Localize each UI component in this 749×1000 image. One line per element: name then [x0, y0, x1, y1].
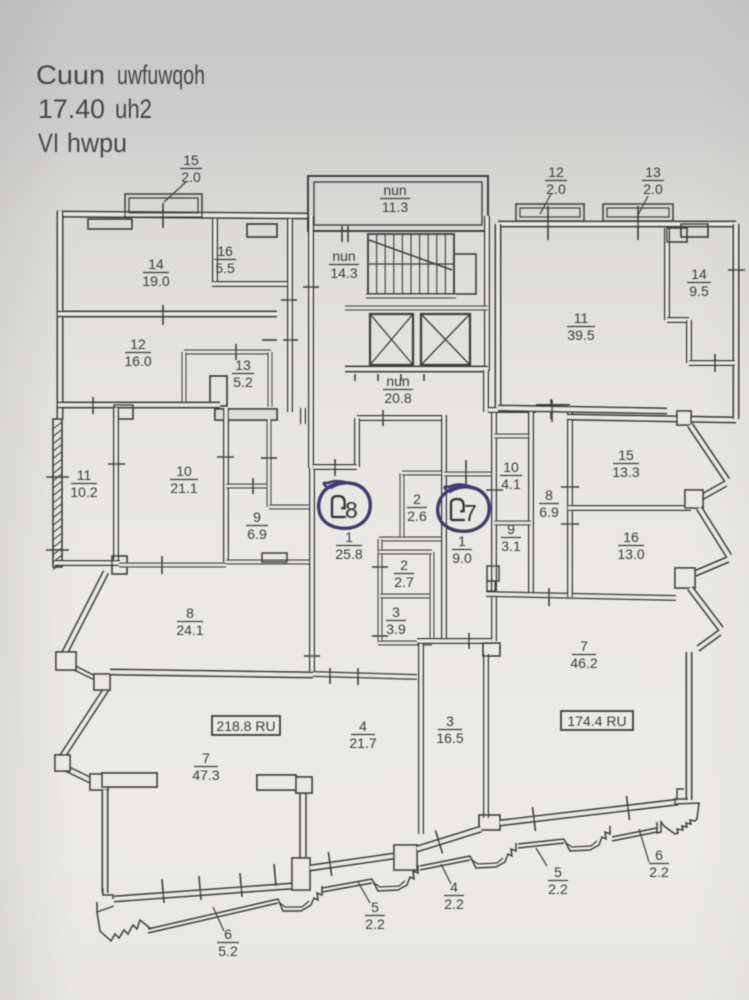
svg-text:14: 14 — [691, 266, 707, 282]
svg-text:16: 16 — [623, 529, 639, 545]
svg-text:13: 13 — [235, 357, 251, 373]
svg-text:2.6: 2.6 — [407, 508, 427, 524]
svg-text:25.8: 25.8 — [335, 546, 362, 562]
svg-text:16.0: 16.0 — [124, 353, 151, 369]
svg-text:2: 2 — [400, 557, 408, 573]
svg-text:6: 6 — [224, 926, 232, 942]
svg-text:4: 4 — [450, 879, 458, 895]
svg-text:Cuun: Cuun — [36, 60, 105, 90]
svg-text:10: 10 — [503, 459, 519, 475]
svg-text:13.3: 13.3 — [612, 464, 639, 480]
svg-text:nun: nun — [386, 373, 409, 389]
svg-text:9: 9 — [253, 509, 261, 525]
svg-text:11: 11 — [77, 467, 92, 483]
svg-text:14: 14 — [148, 256, 164, 272]
svg-text:9: 9 — [507, 521, 515, 537]
svg-text:218.8 RU: 218.8 RU — [216, 718, 275, 734]
svg-text:5.5: 5.5 — [215, 260, 235, 276]
svg-text:8: 8 — [345, 497, 358, 523]
svg-text:5.2: 5.2 — [218, 943, 238, 959]
svg-text:6.9: 6.9 — [539, 504, 559, 520]
svg-text:17.40: 17.40 — [38, 94, 105, 124]
svg-text:2.7: 2.7 — [394, 574, 414, 590]
svg-text:3.9: 3.9 — [386, 621, 406, 637]
svg-text:19.0: 19.0 — [142, 273, 169, 289]
svg-text:21.7: 21.7 — [349, 735, 376, 751]
svg-text:hwpu: hwpu — [67, 128, 127, 158]
svg-text:VI: VI — [38, 128, 59, 158]
svg-text:3.1: 3.1 — [501, 538, 521, 554]
svg-text:uh2: uh2 — [115, 94, 152, 124]
svg-text:6.9: 6.9 — [247, 526, 267, 542]
svg-text:nun: nun — [332, 248, 355, 264]
svg-text:11.3: 11.3 — [382, 199, 408, 215]
svg-text:10: 10 — [176, 463, 192, 479]
svg-text:9.5: 9.5 — [689, 283, 709, 299]
svg-text:12: 12 — [548, 164, 564, 180]
svg-text:15: 15 — [183, 152, 199, 168]
svg-text:13: 13 — [645, 164, 661, 180]
svg-text:13.0: 13.0 — [617, 546, 644, 562]
svg-text:2.2: 2.2 — [365, 916, 385, 932]
svg-text:3: 3 — [446, 713, 454, 729]
svg-text:24.1: 24.1 — [176, 622, 203, 638]
svg-text:2.2: 2.2 — [444, 896, 464, 912]
svg-text:2.0: 2.0 — [181, 169, 201, 185]
svg-text:16: 16 — [217, 243, 233, 259]
svg-text:2.0: 2.0 — [546, 181, 566, 197]
svg-text:2: 2 — [413, 491, 421, 507]
svg-text:5: 5 — [554, 864, 562, 880]
svg-text:21.1: 21.1 — [170, 480, 197, 496]
svg-text:4: 4 — [359, 718, 367, 734]
svg-text:2.0: 2.0 — [643, 181, 663, 197]
svg-text:nun: nun — [383, 182, 406, 198]
svg-text:47.3: 47.3 — [192, 767, 219, 783]
svg-text:12: 12 — [130, 336, 146, 352]
svg-text:39.5: 39.5 — [567, 327, 594, 343]
svg-text:9.0: 9.0 — [452, 550, 472, 566]
svg-text:4.1: 4.1 — [501, 476, 521, 492]
svg-text:2.2: 2.2 — [548, 881, 568, 897]
svg-text:7: 7 — [202, 750, 210, 766]
svg-text:6: 6 — [655, 847, 663, 863]
svg-text:16.5: 16.5 — [436, 730, 463, 746]
svg-text:7: 7 — [580, 638, 588, 654]
svg-text:1: 1 — [458, 533, 466, 549]
svg-text:46.2: 46.2 — [570, 655, 597, 671]
svg-text:11: 11 — [574, 310, 589, 326]
svg-text:uwfuwqoh: uwfuwqoh — [117, 60, 205, 90]
svg-text:15: 15 — [618, 447, 634, 463]
svg-text:7: 7 — [464, 500, 477, 526]
svg-text:1: 1 — [345, 529, 353, 545]
svg-text:20.8: 20.8 — [384, 390, 411, 406]
svg-text:5.2: 5.2 — [233, 374, 253, 390]
svg-text:2.2: 2.2 — [649, 864, 669, 880]
svg-text:14.3: 14.3 — [330, 265, 357, 281]
svg-text:10.2: 10.2 — [70, 484, 97, 500]
svg-text:8: 8 — [186, 605, 194, 621]
svg-text:5: 5 — [371, 899, 379, 915]
svg-text:3: 3 — [392, 604, 400, 620]
svg-text:174.4 RU: 174.4 RU — [567, 713, 626, 729]
svg-text:8: 8 — [545, 487, 553, 503]
